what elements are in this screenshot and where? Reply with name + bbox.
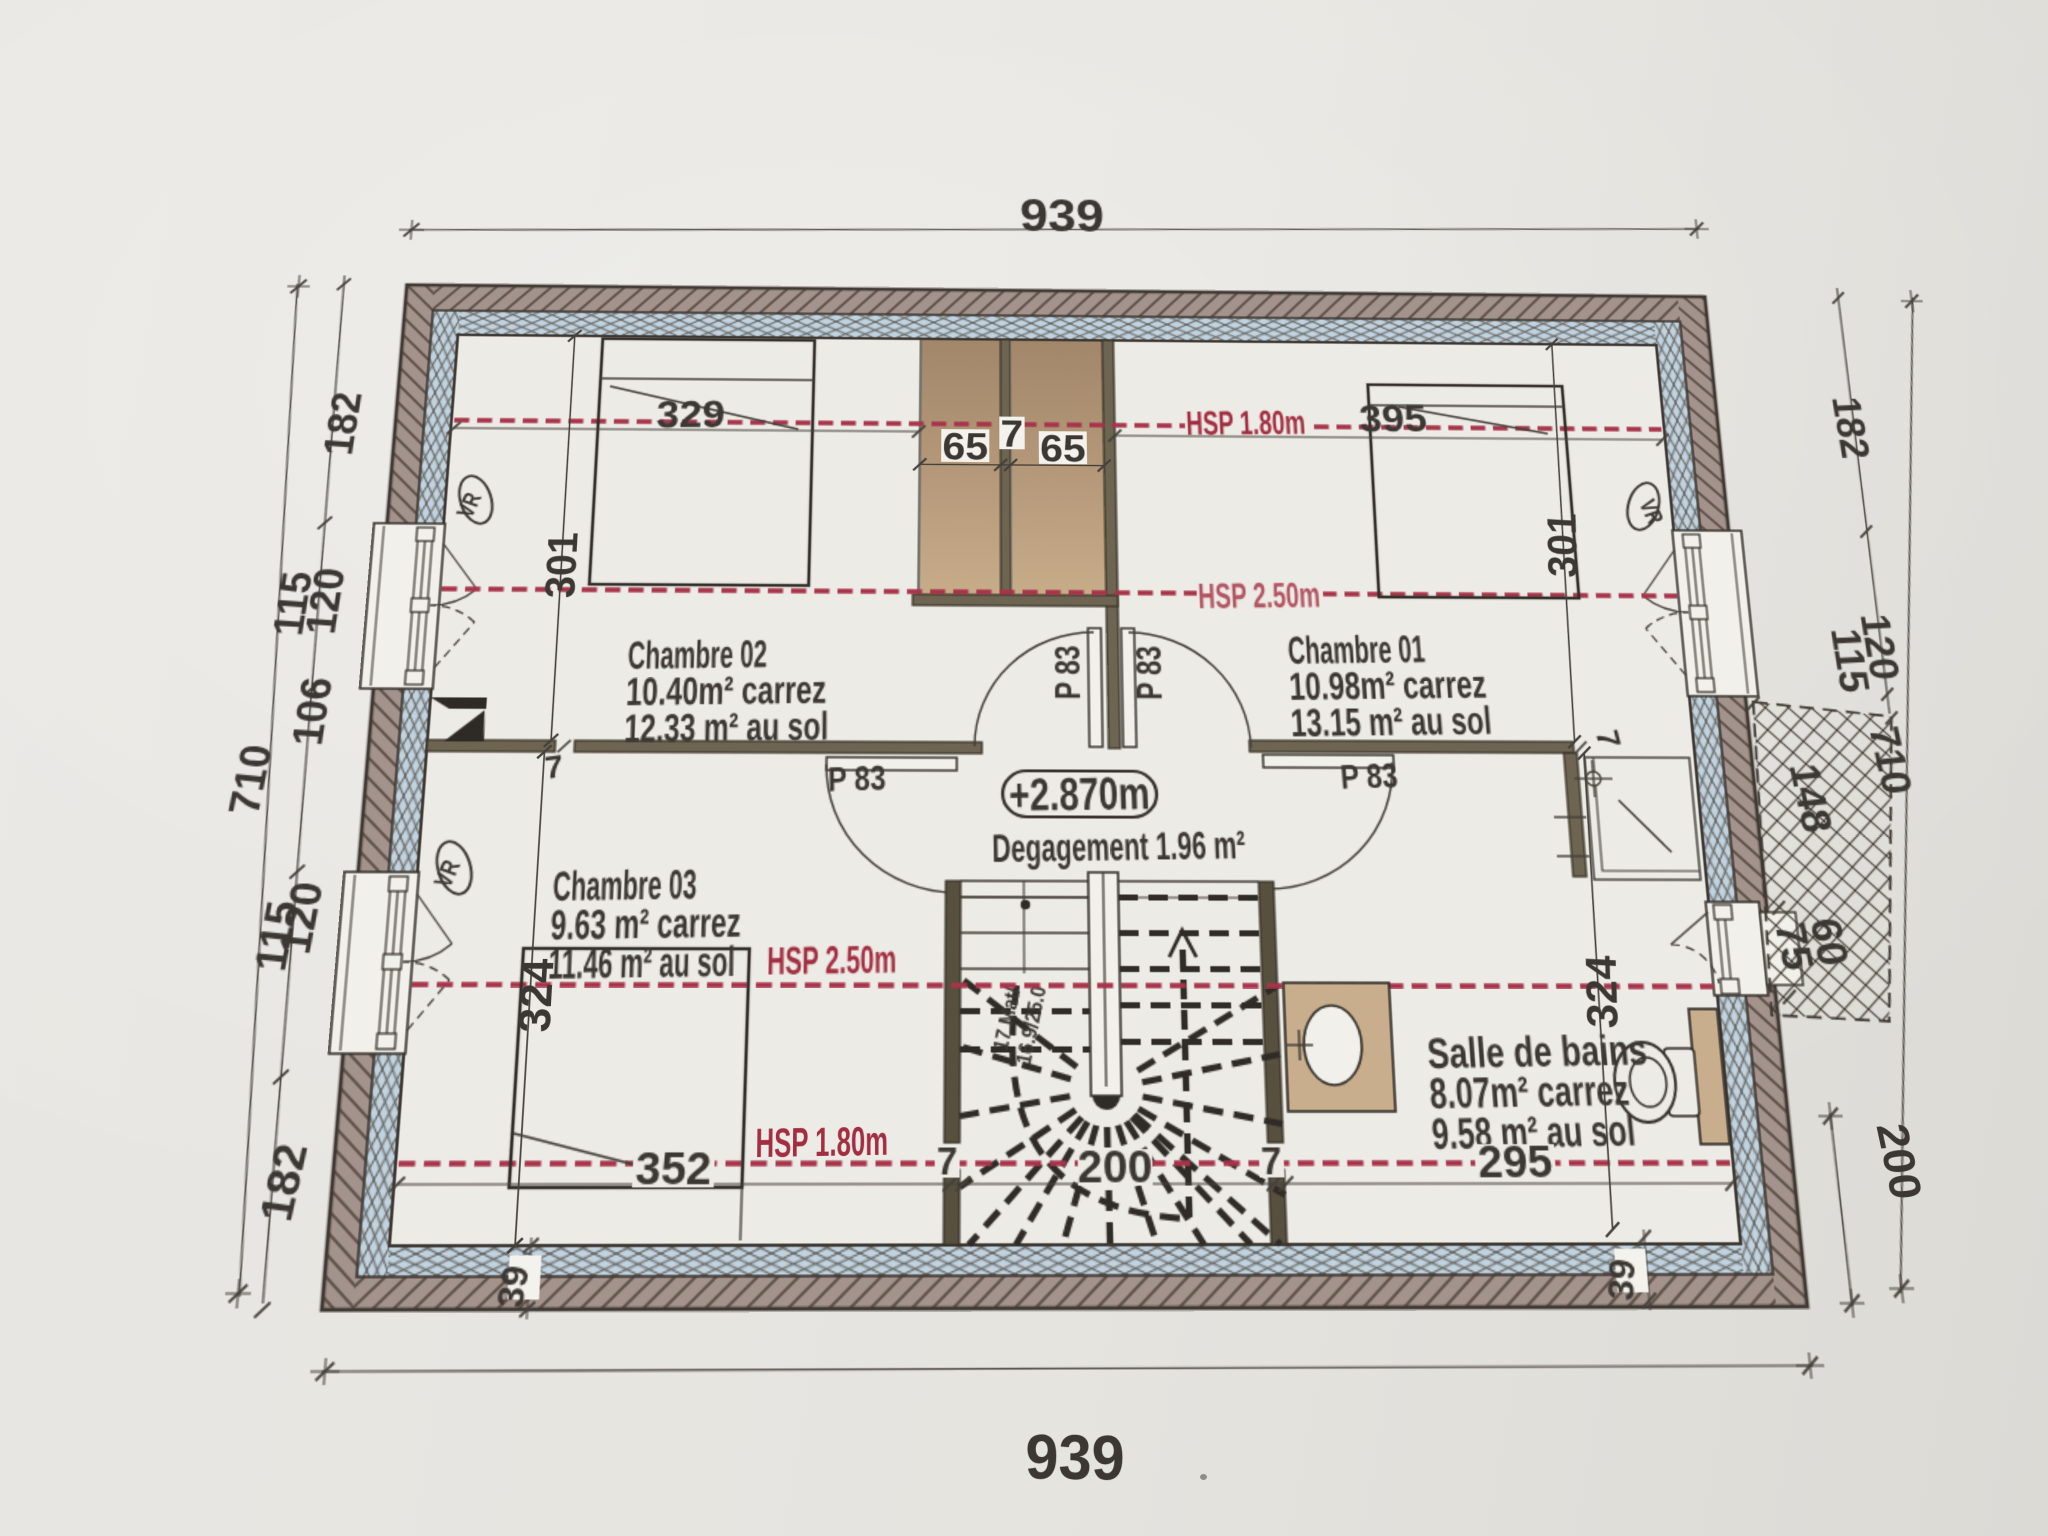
svg-text:P 83: P 83: [1129, 646, 1170, 700]
svg-text:182: 182: [1823, 396, 1879, 460]
svg-text:12.33 m² au sol: 12.33 m² au sol: [624, 704, 829, 751]
svg-text:39: 39: [1602, 1257, 1643, 1303]
svg-text:395: 395: [1358, 398, 1429, 441]
svg-text:329: 329: [656, 393, 726, 436]
svg-text:301: 301: [536, 532, 587, 598]
svg-text:+2.870m: +2.870m: [1009, 768, 1151, 821]
svg-text:115: 115: [245, 898, 308, 973]
svg-text:352: 352: [634, 1143, 712, 1195]
svg-text:HSP 2.50m: HSP 2.50m: [767, 938, 897, 983]
svg-text:HSP 1.80m: HSP 1.80m: [755, 1119, 888, 1167]
svg-text:65: 65: [942, 425, 988, 468]
svg-text:182: 182: [315, 391, 372, 458]
svg-text:200: 200: [1866, 1121, 1931, 1202]
svg-text:324: 324: [510, 958, 565, 1033]
svg-text:182: 182: [250, 1141, 318, 1225]
svg-text:11.46 m² au sol: 11.46 m² au sol: [547, 938, 735, 988]
svg-text:P 83: P 83: [1047, 645, 1087, 699]
svg-text:295: 295: [1476, 1137, 1554, 1188]
svg-text:HSP 2.50m: HSP 2.50m: [1197, 576, 1321, 616]
svg-text:301: 301: [1539, 512, 1587, 579]
svg-text:65: 65: [1040, 428, 1086, 471]
svg-text:75: 75: [1765, 920, 1823, 973]
svg-text:P 83: P 83: [1339, 756, 1399, 797]
svg-text:7: 7: [1260, 1140, 1282, 1183]
svg-text:7: 7: [937, 1140, 958, 1183]
svg-text:7: 7: [543, 750, 564, 787]
svg-text:106: 106: [283, 676, 342, 748]
svg-text:7: 7: [1001, 413, 1024, 456]
svg-text:710: 710: [219, 742, 282, 817]
svg-text:13.15 m² au sol: 13.15 m² au sol: [1289, 699, 1493, 745]
svg-text:200: 200: [1077, 1142, 1153, 1194]
svg-text:939: 939: [1025, 1423, 1125, 1494]
svg-text:Degagement 1.96 m²: Degagement 1.96 m²: [992, 823, 1247, 871]
svg-text:39: 39: [491, 1263, 538, 1310]
svg-text:P 83: P 83: [828, 758, 887, 799]
svg-text:324: 324: [1577, 953, 1628, 1029]
svg-text:939: 939: [1020, 191, 1105, 242]
